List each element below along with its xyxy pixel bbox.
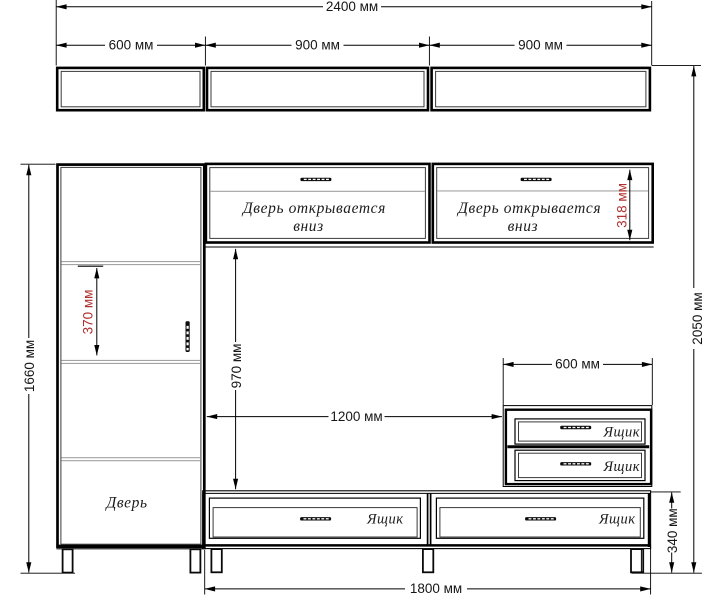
svg-text:340 мм: 340 мм <box>665 508 680 553</box>
svg-text:1660 мм: 1660 мм <box>22 340 37 392</box>
svg-text:Ящик: Ящик <box>603 459 641 475</box>
svg-text:вниз: вниз <box>508 218 539 235</box>
svg-text:1200 мм: 1200 мм <box>330 409 382 424</box>
svg-text:900 мм: 900 мм <box>295 38 340 53</box>
svg-text:вниз: вниз <box>293 218 324 235</box>
svg-text:2050 мм: 2050 мм <box>690 292 705 344</box>
svg-text:900 мм: 900 мм <box>518 38 563 53</box>
svg-text:Дверь открывается: Дверь открывается <box>456 200 601 217</box>
svg-text:Дверь: Дверь <box>104 495 147 512</box>
svg-text:318 мм: 318 мм <box>615 183 630 228</box>
svg-text:1800 мм: 1800 мм <box>410 581 462 596</box>
svg-text:600 мм: 600 мм <box>555 357 600 372</box>
svg-text:2400 мм: 2400 мм <box>326 0 378 14</box>
svg-text:370 мм: 370 мм <box>81 290 96 335</box>
svg-text:Дверь открывается: Дверь открывается <box>241 200 386 217</box>
svg-text:Ящик: Ящик <box>366 512 404 528</box>
svg-text:Ящик: Ящик <box>598 512 636 528</box>
svg-text:970 мм: 970 мм <box>229 344 244 389</box>
svg-text:600 мм: 600 мм <box>109 38 154 53</box>
svg-text:Ящик: Ящик <box>603 425 641 441</box>
